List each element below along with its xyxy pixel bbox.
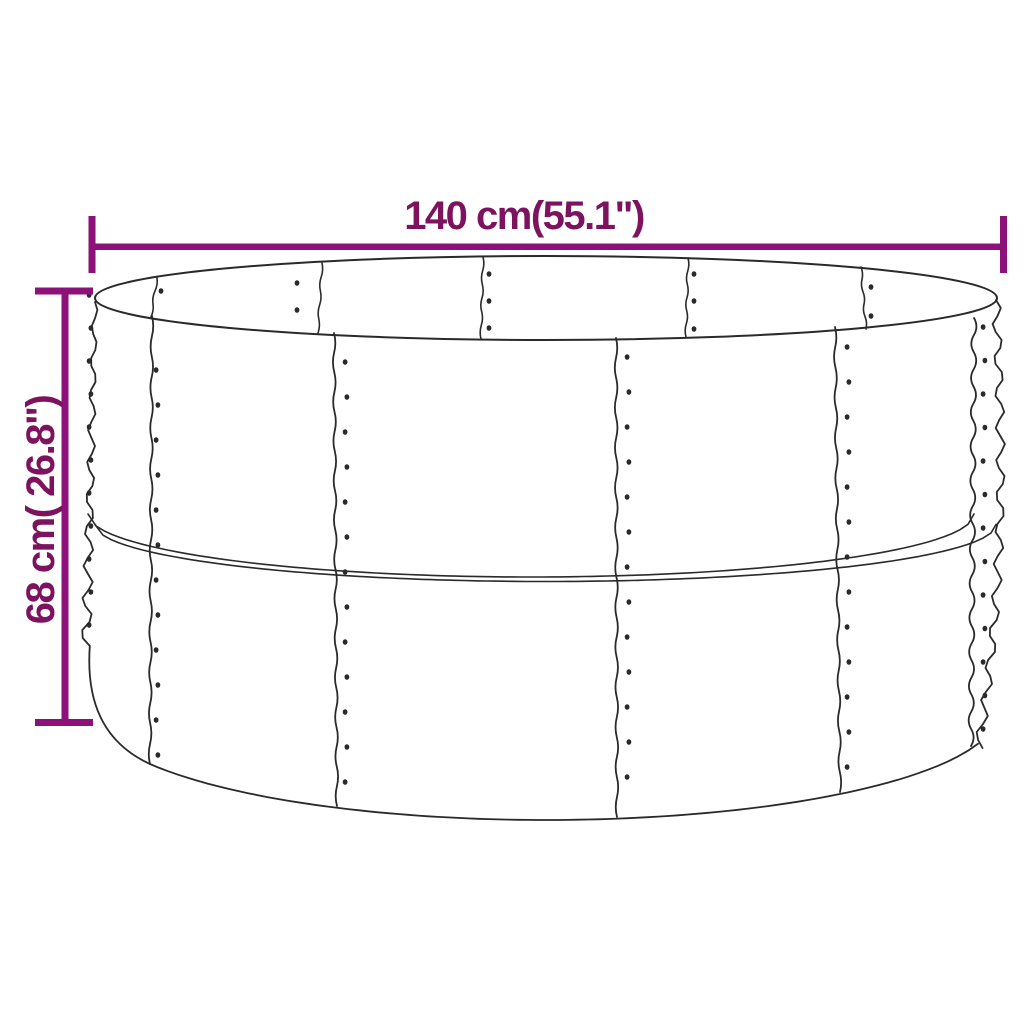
planter-line-drawing xyxy=(82,256,1005,820)
width-dimension-label: 140 cm(55.1") xyxy=(404,194,644,238)
width-dimension-cap-right xyxy=(1000,216,1007,273)
height-dimension-cap-top xyxy=(35,288,93,295)
planter-dimension-diagram: 140 cm(55.1") 68 cm( 26.8") xyxy=(0,0,1024,1024)
height-dimension-label: 68 cm( 26.8") xyxy=(19,396,63,625)
height-dimension-cap-bottom xyxy=(35,719,93,726)
width-dimension-cap-left xyxy=(89,216,96,273)
width-dimension-bar xyxy=(91,244,1004,251)
